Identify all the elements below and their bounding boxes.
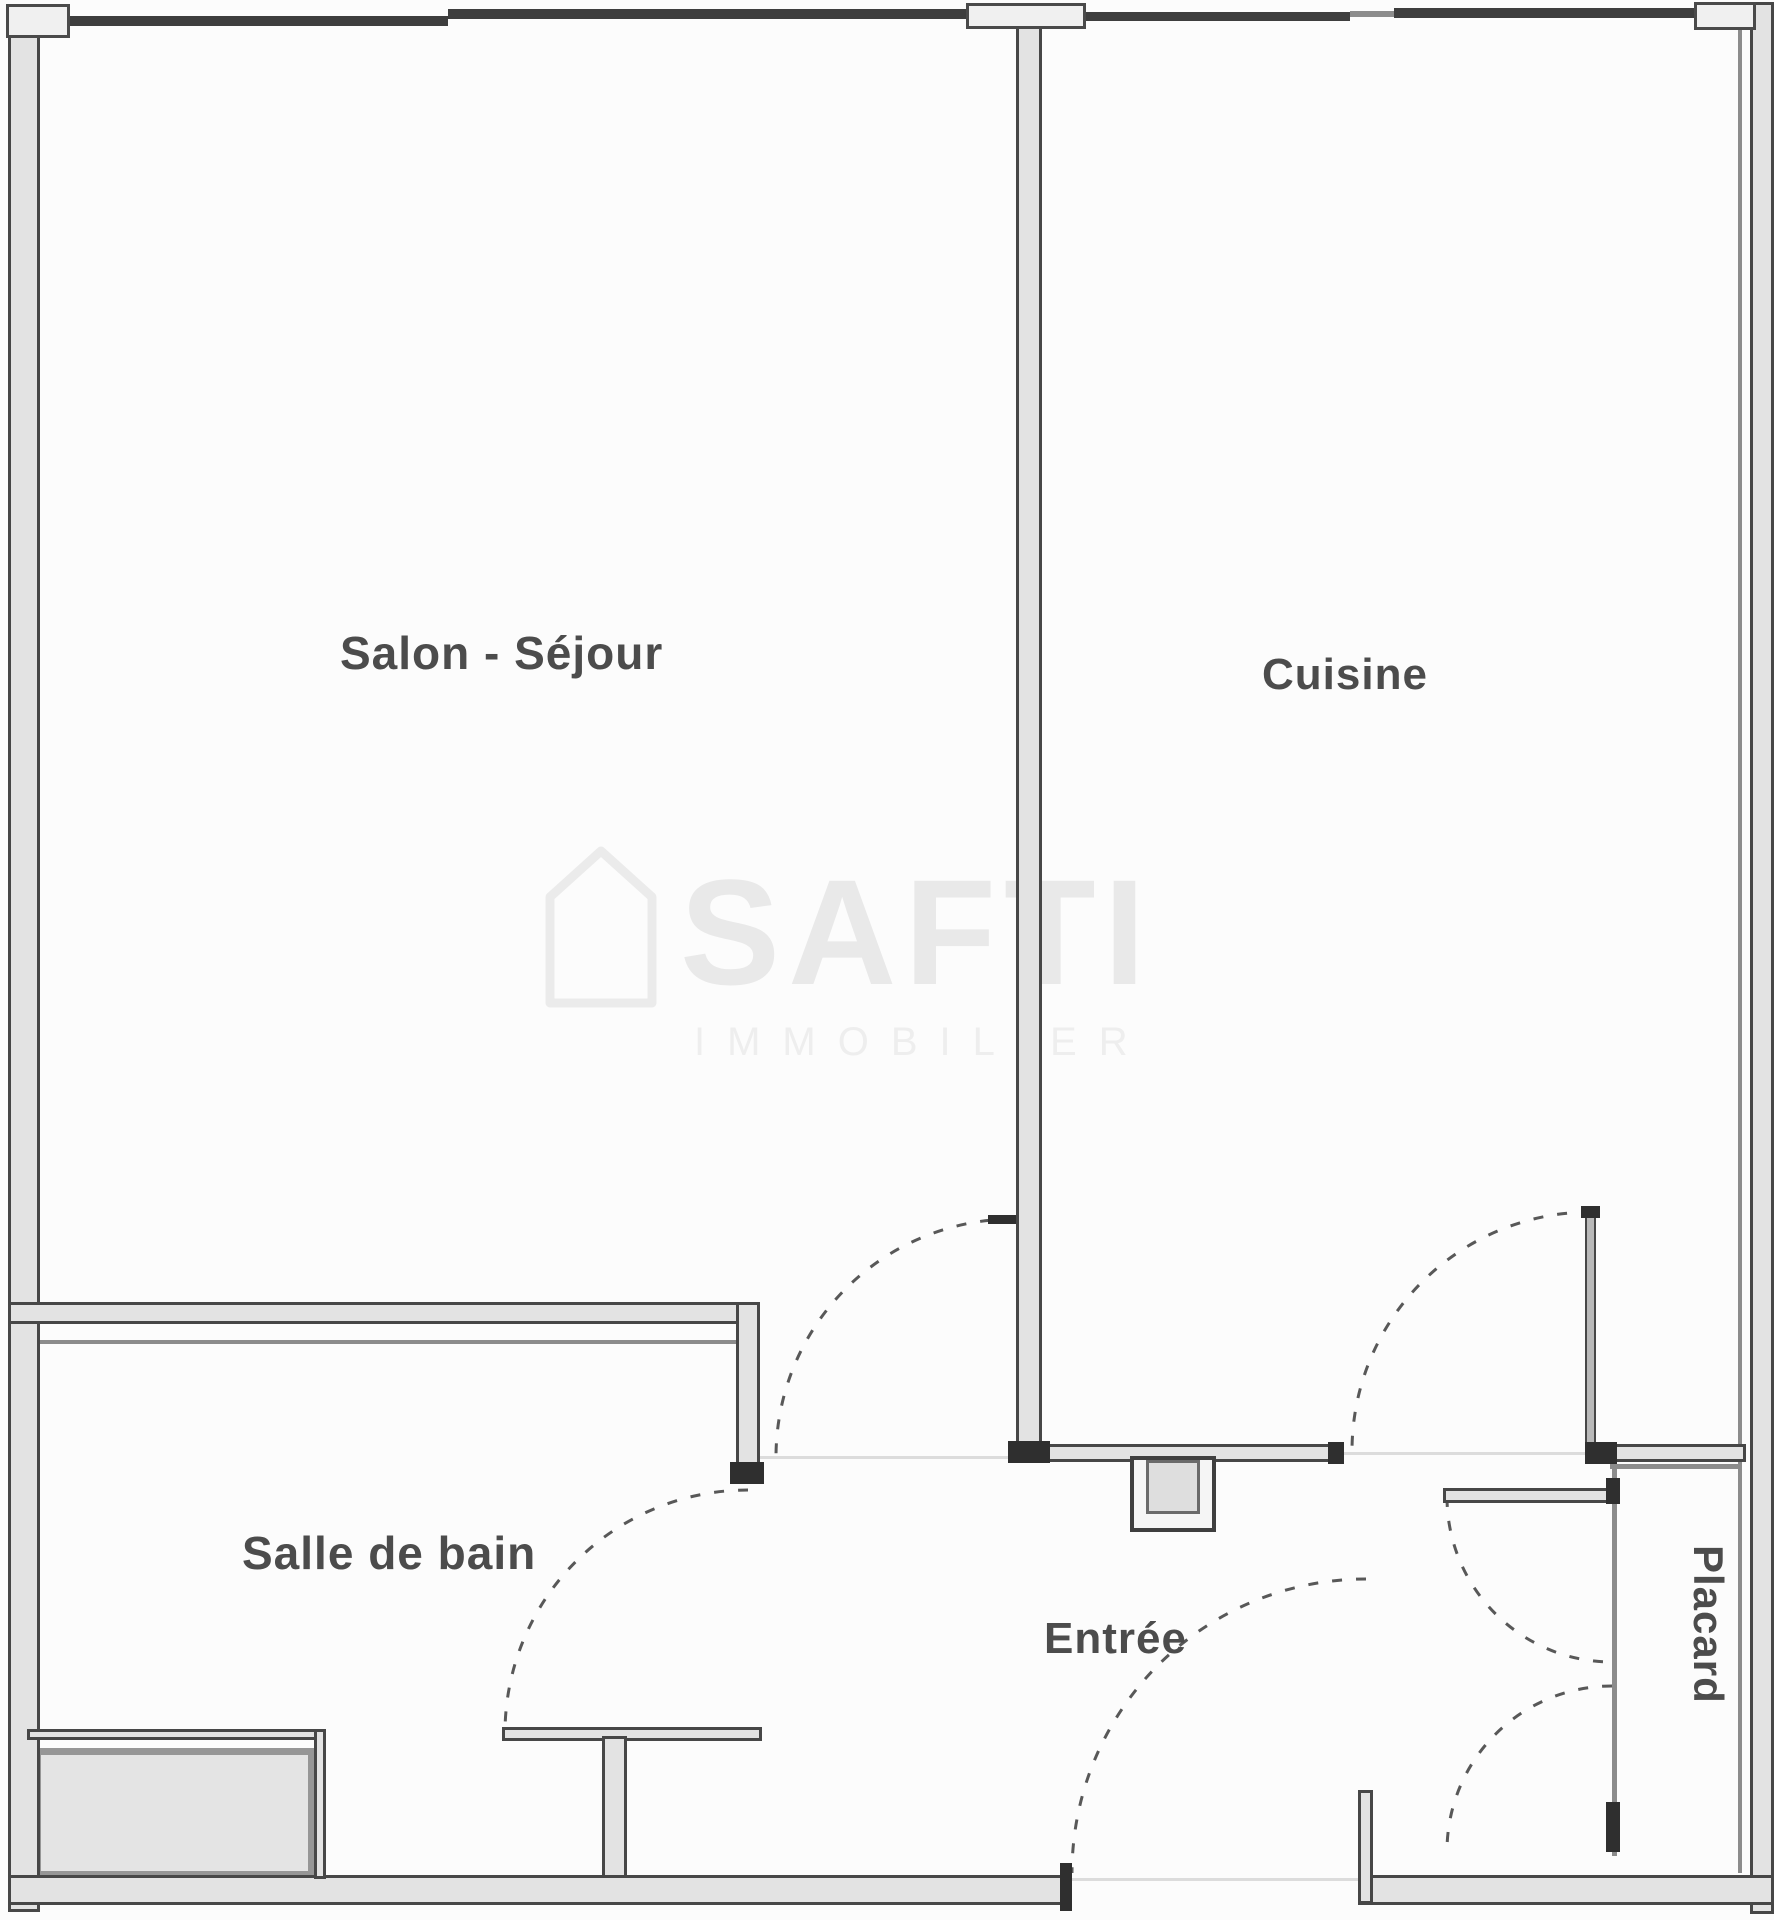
shaded-fixture-box [34,1748,315,1878]
living-door-arc [776,1219,1014,1457]
floorplan-canvas: SAFTI IMMOBILIER [0,0,1774,1920]
wall-bathroom-stub-cap [730,1462,764,1484]
bathroom-door-arc [505,1490,748,1733]
wall-closet-left-top-cap [1606,1478,1620,1504]
wall-kitchen-bottom-cap [1328,1442,1344,1464]
wall-right-inner-line [1738,28,1742,1873]
wall-top-segment-d [1394,8,1694,18]
room-label-kitchen: Cuisine [1262,650,1428,700]
wall-outer-right [1750,2,1774,1914]
wall-entrance-stub [1358,1790,1373,1904]
wall-top-segment-a [70,16,448,26]
door-arcs-layer [0,0,1774,1920]
room-label-entry: Entrée [1044,1614,1187,1664]
wall-divider-living-kitchen [1016,24,1042,1448]
duct-column-inner [1146,1460,1200,1514]
wall-bathroom-stub [736,1302,760,1484]
wall-closet-left-bottom-cap [1606,1802,1620,1852]
kitchen-door-arc [1352,1212,1591,1451]
wall-bottom-right [1358,1875,1774,1905]
room-label-living: Salon - Séjour [340,626,663,680]
wall-closet-top-line [1610,1464,1742,1469]
closet-upper-door-arc [1447,1497,1612,1662]
wall-divider-bottom-cap [1008,1441,1050,1463]
room-label-closet: Placard [1684,1545,1732,1704]
wall-bathroom-lower [502,1727,762,1741]
living-door-hinge-tick [988,1215,1016,1224]
closet-lower-door-arc [1447,1686,1612,1851]
wall-bathroom-top [8,1302,760,1324]
wall-bottom-left [8,1875,1070,1905]
wall-top-junction-block [966,3,1086,29]
wall-closet-left-line [1612,1468,1617,1856]
wall-box-right [314,1729,326,1879]
wall-outer-left [8,6,40,1912]
wall-top-segment-b [448,9,968,19]
kitchen-door-leaf [1585,1210,1596,1450]
wall-bathroom-top-inner-line [40,1340,742,1344]
window-top [1350,11,1394,17]
kitchen-door-pivot-cap [1585,1442,1617,1464]
wall-bottom-left-end-cap [1060,1863,1072,1911]
room-label-bathroom: Salle de bain [242,1526,536,1580]
wall-closet-upper [1443,1488,1615,1503]
kitchen-door-leaf-cap [1581,1206,1600,1218]
wall-entry-left [602,1736,627,1878]
wall-corner-block-top-left [6,4,70,38]
wall-kitchen-bottom-right [1596,1444,1746,1462]
wall-corner-block-top-right [1694,2,1756,30]
wall-top-segment-c [1086,12,1350,21]
wall-box-top [27,1729,325,1740]
